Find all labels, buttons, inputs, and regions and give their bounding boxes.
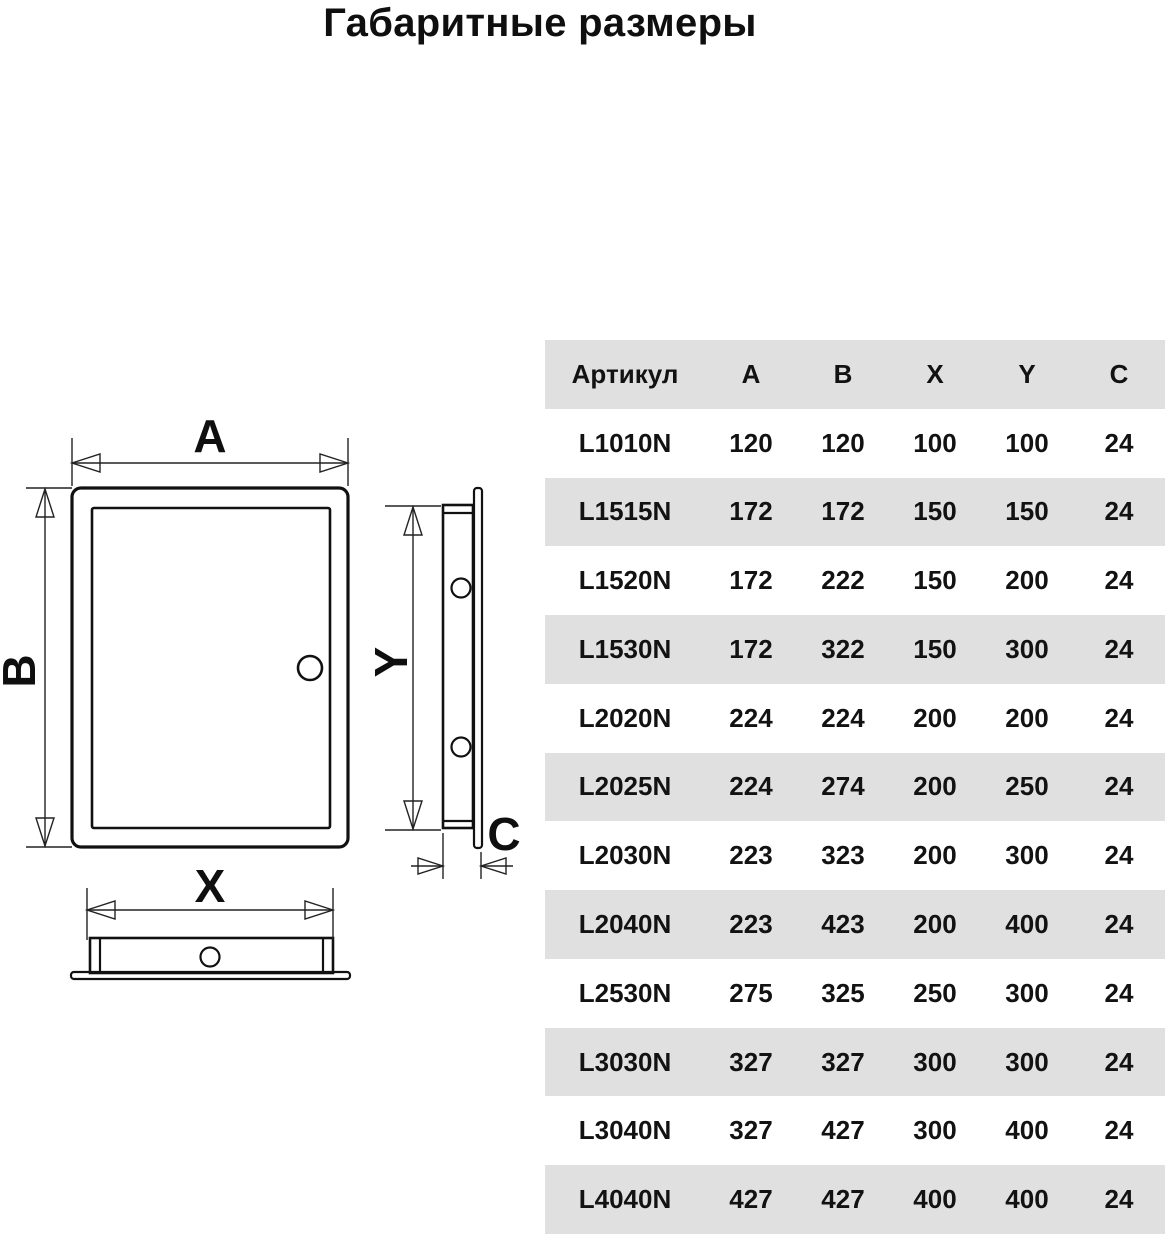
side-view-hole-icon [452,579,471,598]
cell-b: 423 [797,890,889,959]
table-row: L4040N 427 427 400 400 24 [545,1165,1165,1234]
side-view-hole-icon [452,738,471,757]
cell-x: 150 [889,546,981,615]
cell-article: L2530N [545,959,705,1028]
cell-y: 400 [981,1096,1073,1165]
dim-b: B [0,488,72,847]
cell-x: 200 [889,684,981,753]
column-header-y: Y [981,340,1073,409]
cell-article: L4040N [545,1165,705,1234]
dim-c: C [411,808,521,879]
side-view-flange [474,488,482,848]
cell-a: 224 [705,753,797,822]
table-row: L2030N 223 323 200 300 24 [545,821,1165,890]
cell-a: 427 [705,1165,797,1234]
cell-x: 250 [889,959,981,1028]
bottom-view-body [90,938,333,973]
cell-article: L2025N [545,753,705,822]
table-row: L3030N 327 327 300 300 24 [545,1028,1165,1097]
cell-x: 150 [889,478,981,547]
column-header-x: X [889,340,981,409]
cell-y: 400 [981,890,1073,959]
cell-y: 300 [981,821,1073,890]
table-row: L1530N 172 322 150 300 24 [545,615,1165,684]
cell-c: 24 [1073,753,1165,822]
cell-x: 300 [889,1096,981,1165]
cell-c: 24 [1073,821,1165,890]
cell-b: 427 [797,1165,889,1234]
cell-a: 172 [705,478,797,547]
dim-y: Y [365,506,441,830]
page-title: Габаритные размеры [0,0,1080,49]
table-row: L2040N 223 423 200 400 24 [545,890,1165,959]
cell-a: 223 [705,890,797,959]
front-view-handle-icon [298,656,322,680]
front-view-door [92,508,330,828]
cell-y: 400 [981,1165,1073,1234]
dim-label-a: A [193,410,226,462]
cell-a: 172 [705,546,797,615]
cell-article: L1530N [545,615,705,684]
dim-x: X [87,860,333,940]
cell-a: 224 [705,684,797,753]
cell-c: 24 [1073,1028,1165,1097]
cell-y: 200 [981,684,1073,753]
dim-label-c: C [487,808,520,860]
table-row: L1515N 172 172 150 150 24 [545,478,1165,547]
cell-c: 24 [1073,478,1165,547]
dim-a: A [72,410,348,486]
cell-b: 427 [797,1096,889,1165]
cell-x: 200 [889,753,981,822]
dim-label-x: X [195,860,226,912]
cell-x: 200 [889,890,981,959]
cell-c: 24 [1073,684,1165,753]
cell-b: 222 [797,546,889,615]
cell-c: 24 [1073,615,1165,684]
table-row: L3040N 327 427 300 400 24 [545,1096,1165,1165]
cell-b: 120 [797,409,889,478]
cell-b: 224 [797,684,889,753]
table-row: L1010N 120 120 100 100 24 [545,409,1165,478]
cell-y: 200 [981,546,1073,615]
dim-label-b: B [0,654,45,687]
front-view-frame [72,488,348,847]
table-row: L2020N 224 224 200 200 24 [545,684,1165,753]
cell-b: 327 [797,1028,889,1097]
cell-y: 300 [981,959,1073,1028]
cell-a: 275 [705,959,797,1028]
column-header-a: A [705,340,797,409]
column-header-article: Артикул [545,340,705,409]
page: Габаритные размеры A B [0,0,1168,1234]
cell-c: 24 [1073,1096,1165,1165]
front-view [72,488,348,847]
cell-x: 300 [889,1028,981,1097]
cell-article: L1520N [545,546,705,615]
cell-c: 24 [1073,1165,1165,1234]
cell-b: 325 [797,959,889,1028]
cell-c: 24 [1073,409,1165,478]
column-header-c: C [1073,340,1165,409]
cell-x: 200 [889,821,981,890]
cell-article: L3040N [545,1096,705,1165]
cell-article: L1515N [545,478,705,547]
table-row: L2025N 224 274 200 250 24 [545,753,1165,822]
cell-b: 172 [797,478,889,547]
cell-y: 250 [981,753,1073,822]
bottom-view-hole-icon [201,948,220,967]
bottom-view [71,938,350,979]
dimension-drawing: A B Y [0,400,540,1000]
table-row: L1520N 172 222 150 200 24 [545,546,1165,615]
cell-a: 120 [705,409,797,478]
cell-b: 274 [797,753,889,822]
cell-article: L3030N [545,1028,705,1097]
cell-a: 223 [705,821,797,890]
cell-b: 323 [797,821,889,890]
cell-y: 150 [981,478,1073,547]
cell-c: 24 [1073,959,1165,1028]
cell-b: 322 [797,615,889,684]
cell-c: 24 [1073,890,1165,959]
side-view-body [443,505,473,828]
cell-x: 100 [889,409,981,478]
table-header-row: Артикул A B X Y C [545,340,1165,409]
bottom-view-flange [71,972,350,979]
cell-article: L2040N [545,890,705,959]
cell-c: 24 [1073,546,1165,615]
cell-article: L2030N [545,821,705,890]
cell-article: L2020N [545,684,705,753]
cell-a: 172 [705,615,797,684]
cell-a: 327 [705,1028,797,1097]
cell-a: 327 [705,1096,797,1165]
table-row: L2530N 275 325 250 300 24 [545,959,1165,1028]
cell-y: 300 [981,1028,1073,1097]
column-header-b: B [797,340,889,409]
dim-label-y: Y [365,647,417,678]
cell-article: L1010N [545,409,705,478]
cell-y: 100 [981,409,1073,478]
dimensions-table: Артикул A B X Y C L1010N 120 120 100 100… [545,340,1165,1234]
side-view [443,488,482,848]
cell-x: 150 [889,615,981,684]
cell-y: 300 [981,615,1073,684]
cell-x: 400 [889,1165,981,1234]
